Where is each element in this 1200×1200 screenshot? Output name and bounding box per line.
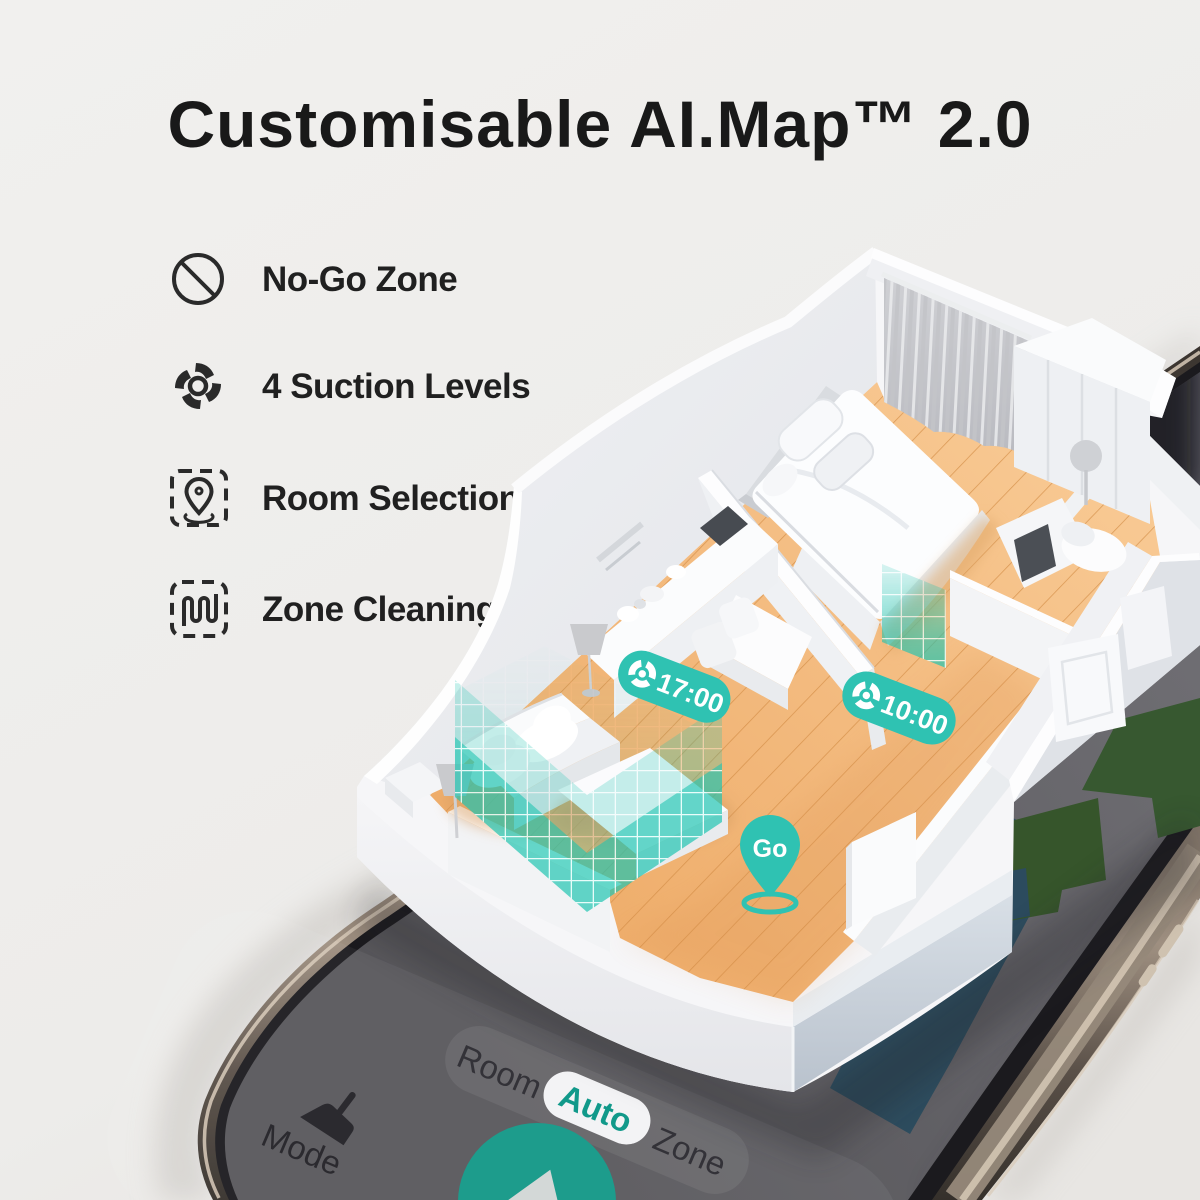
svg-text:Room Selection: Room Selection bbox=[262, 479, 519, 518]
svg-text:No-Go Zone: No-Go Zone bbox=[262, 260, 457, 299]
svg-text:Customisable AI.Map™ 2.0: Customisable AI.Map™ 2.0 bbox=[167, 87, 1032, 161]
svg-text:4 Suction Levels: 4 Suction Levels bbox=[262, 367, 530, 406]
svg-text:Zone Cleaning: Zone Cleaning bbox=[262, 590, 497, 629]
svg-text:Go: Go bbox=[753, 835, 788, 863]
